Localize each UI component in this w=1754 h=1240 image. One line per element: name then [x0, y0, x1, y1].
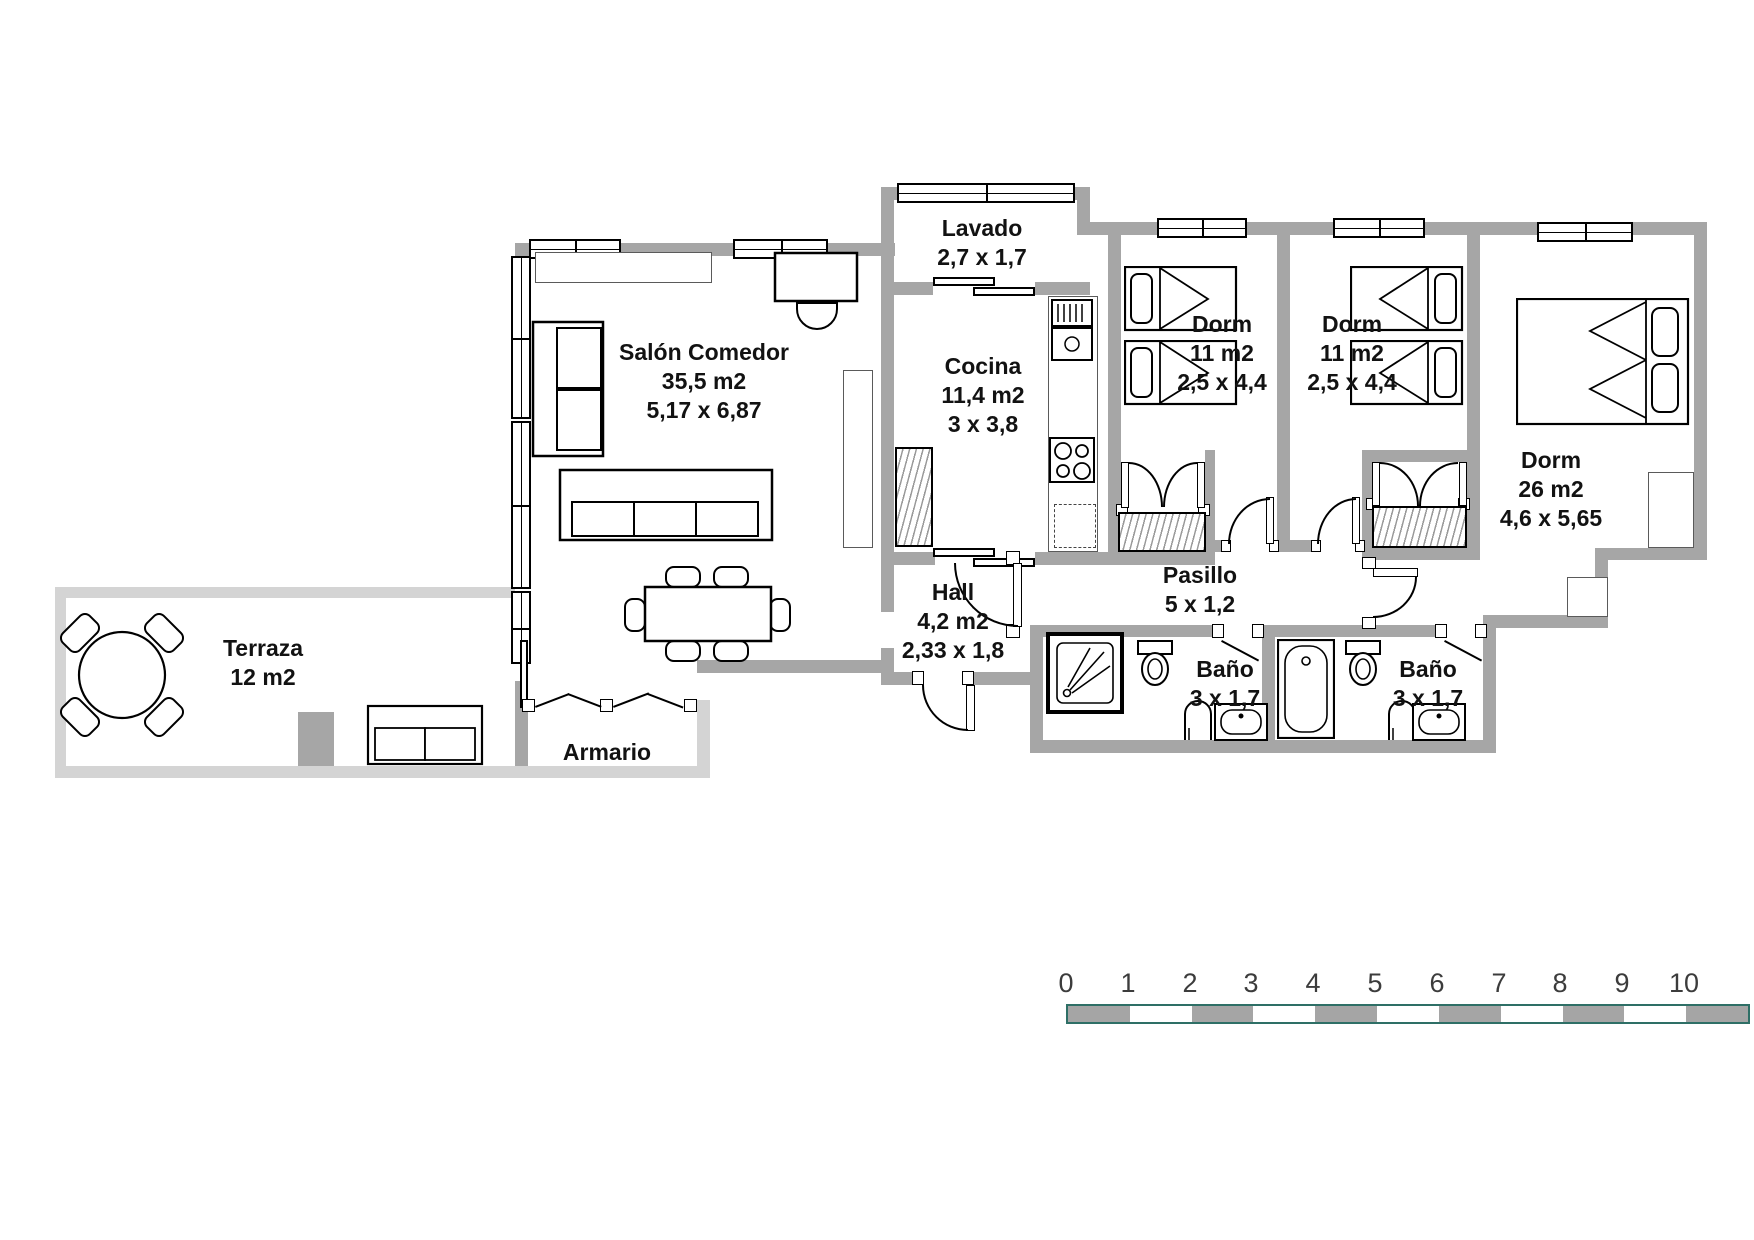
- room-area: 11,4 m2: [941, 381, 1024, 410]
- kitchen-sink-icon: [1050, 298, 1096, 364]
- fold-door-line: [613, 692, 649, 707]
- room-dims: 3 x 1,7: [1190, 684, 1260, 713]
- toilet-icon: [1136, 639, 1174, 687]
- closet1-box: [1118, 512, 1206, 552]
- window-salon-left-1: [511, 256, 531, 419]
- wall-hall-left-upper: [881, 565, 894, 612]
- scale-segment: [1377, 1006, 1439, 1022]
- scale-segment: [1253, 1006, 1315, 1022]
- pantry-closet-cocina: [895, 447, 933, 547]
- closet1-arc-left: [1129, 462, 1163, 507]
- room-dims: 5 x 1,2: [1163, 590, 1237, 619]
- room-name: Dorm: [1177, 310, 1267, 339]
- window-dorm3: [1537, 222, 1633, 242]
- shower-icon: [1046, 632, 1124, 714]
- label-lavado: Lavado 2,7 x 1,7: [937, 214, 1027, 272]
- room-dims: 2,33 x 1,8: [902, 636, 1004, 665]
- label-bano2: Baño 3 x 1,7: [1393, 655, 1463, 713]
- door-jamb: [1362, 617, 1376, 629]
- window-dorm2: [1333, 218, 1425, 238]
- armario-wall-right: [697, 700, 710, 778]
- room-name: Hall: [902, 578, 1004, 607]
- room-name: Cocina: [941, 352, 1024, 381]
- scale-tick-1: 1: [1120, 968, 1135, 999]
- wall-banos-top-b: [1258, 625, 1443, 637]
- scale-tick-0: 0: [1058, 968, 1073, 999]
- appliance-dashed: [1054, 504, 1096, 548]
- terrace-wall-top: [55, 587, 515, 598]
- fold-door-line: [567, 693, 601, 708]
- scale-tick-7: 7: [1491, 968, 1506, 999]
- closet2-leaf-right: [1459, 462, 1467, 506]
- room-dims: 3 x 3,8: [941, 410, 1024, 439]
- room-dims: 5,17 x 6,87: [619, 396, 789, 425]
- scale-tick-3: 3: [1243, 968, 1258, 999]
- room-area: 35,5 m2: [619, 367, 789, 396]
- scale-segment: [1686, 1006, 1748, 1022]
- scale-segment: [1501, 1006, 1563, 1022]
- room-area: 11 m2: [1307, 339, 1397, 368]
- window-salon-left-2: [511, 421, 531, 589]
- room-dims: 3 x 1,7: [1393, 684, 1463, 713]
- floor-plan: Salón Comedor 35,5 m2 5,17 x 6,87 Lavado…: [0, 0, 1754, 1240]
- room-area: 26 m2: [1500, 475, 1602, 504]
- scale-bar: [1066, 1004, 1750, 1024]
- closet1-leaf-left: [1121, 462, 1129, 508]
- terrace-wall-bottom: [55, 766, 710, 778]
- label-pasillo: Pasillo 5 x 1,2: [1163, 561, 1237, 619]
- label-dorm1: Dorm 11 m2 2,5 x 4,4: [1177, 310, 1267, 397]
- dorm3-step-b: [1567, 577, 1608, 617]
- door-arc-dorm3: [1373, 577, 1417, 618]
- door-jamb: [1435, 624, 1447, 638]
- label-armario: Armario: [563, 738, 651, 767]
- room-name: Salón Comedor: [619, 338, 789, 367]
- door-arc-dorm1: [1228, 498, 1270, 544]
- sliding-door-cocina-a: [933, 548, 995, 557]
- wall-salon-cocina: [881, 187, 894, 565]
- sofa-two-seat-icon: [531, 320, 607, 458]
- room-name: Baño: [1190, 655, 1260, 684]
- room-name: Pasillo: [1163, 561, 1237, 590]
- wall-dorm3-bottom: [1608, 548, 1707, 560]
- wall-closet2-top: [1362, 450, 1467, 462]
- window-lavado: [897, 183, 1075, 203]
- closet2-leaf-left: [1372, 462, 1380, 506]
- closet2-box: [1372, 506, 1467, 548]
- closet2-arc-right: [1419, 462, 1458, 506]
- desk-chair-icon: [773, 251, 861, 333]
- room-name: Lavado: [937, 214, 1027, 243]
- sofa-three-seat-icon: [558, 468, 774, 542]
- scale-tick-5: 5: [1367, 968, 1382, 999]
- wall-dorm1-dorm2: [1277, 235, 1290, 552]
- room-dims: 2,5 x 4,4: [1307, 368, 1397, 397]
- room-name: Dorm: [1500, 446, 1602, 475]
- stove-icon: [1048, 436, 1098, 486]
- door-leaf-dorm3: [1373, 568, 1418, 577]
- label-cocina: Cocina 11,4 m2 3 x 3,8: [941, 352, 1024, 439]
- scale-tick-4: 4: [1305, 968, 1320, 999]
- label-dorm2: Dorm 11 m2 2,5 x 4,4: [1307, 310, 1397, 397]
- scale-segment: [1068, 1006, 1130, 1022]
- room-area: 4,2 m2: [902, 607, 1004, 636]
- pillar-terraza: [298, 712, 334, 766]
- dorm3-step-a: [1648, 472, 1694, 548]
- room-dims: 2,5 x 4,4: [1177, 368, 1267, 397]
- scale-tick-9: 9: [1614, 968, 1629, 999]
- room-name: Terraza: [223, 634, 303, 663]
- scale-segment: [1624, 1006, 1686, 1022]
- wall-bano1-left: [1030, 625, 1043, 753]
- label-hall: Hall 4,2 m2 2,33 x 1,8: [902, 578, 1004, 665]
- wall-closet1-stub: [1205, 450, 1215, 552]
- terrace-table-icon: [50, 605, 200, 747]
- window-dorm1: [1157, 218, 1247, 238]
- wall-banos-bottom: [1030, 740, 1496, 753]
- wall-lavado-divider-left: [881, 282, 933, 295]
- label-terraza: Terraza 12 m2: [223, 634, 303, 692]
- toilet-icon: [1344, 639, 1382, 687]
- room-area: 12 m2: [223, 663, 303, 692]
- closet2-arc-left: [1380, 462, 1419, 506]
- dining-table-icon: [618, 563, 798, 665]
- fold-door-jamb: [600, 699, 613, 712]
- closet1-arc-right: [1163, 462, 1197, 507]
- door-arc-dorm2: [1317, 498, 1356, 544]
- entrance-door-arc: [922, 685, 968, 731]
- wall-dorm2-dorm3: [1467, 235, 1480, 560]
- door-jamb: [1212, 624, 1224, 638]
- wall-lavado-divider-right: [1035, 282, 1090, 295]
- scale-segment: [1439, 1006, 1501, 1022]
- terrace-sofa-icon: [366, 704, 484, 766]
- fold-door-jamb: [522, 699, 535, 712]
- fold-door-jamb: [684, 699, 697, 712]
- scale-tick-8: 8: [1552, 968, 1567, 999]
- fold-door-line: [535, 693, 569, 708]
- room-dims: 2,7 x 1,7: [937, 243, 1027, 272]
- sliding-door-lavado-b: [973, 287, 1035, 296]
- wall-hall-top: [881, 552, 935, 565]
- shelf-salon-right: [843, 370, 873, 548]
- scale-segment: [1315, 1006, 1377, 1022]
- bathtub-icon: [1277, 639, 1335, 739]
- scale-segment: [1192, 1006, 1254, 1022]
- scale-tick-10: 10: [1669, 968, 1699, 999]
- sliding-door-lavado-a: [933, 277, 995, 286]
- door-jamb: [1252, 624, 1264, 638]
- door-jamb: [962, 671, 974, 685]
- double-bed-icon: [1516, 298, 1690, 426]
- label-salon: Salón Comedor 35,5 m2 5,17 x 6,87: [619, 338, 789, 425]
- sideboard-salon-top: [535, 252, 712, 283]
- room-dims: 4,6 x 5,65: [1500, 504, 1602, 533]
- room-area: 11 m2: [1177, 339, 1267, 368]
- label-bano1: Baño 3 x 1,7: [1190, 655, 1260, 713]
- sliding-door-terraza: [520, 640, 528, 708]
- scale-tick-2: 2: [1182, 968, 1197, 999]
- room-name: Baño: [1393, 655, 1463, 684]
- door-jamb: [912, 671, 924, 685]
- fold-door-line: [647, 693, 683, 708]
- scale-segment: [1130, 1006, 1192, 1022]
- door-jamb: [1475, 624, 1487, 638]
- closet1-leaf-right: [1197, 462, 1205, 508]
- wall-closet2-bottom: [1362, 548, 1480, 560]
- scale-segment: [1563, 1006, 1625, 1022]
- label-dorm3: Dorm 26 m2 4,6 x 5,65: [1500, 446, 1602, 533]
- room-name: Armario: [563, 738, 651, 767]
- room-name: Dorm: [1307, 310, 1397, 339]
- wall-dorm3-right: [1694, 235, 1707, 560]
- wall-hall-bottom-right: [970, 672, 1043, 685]
- scale-tick-6: 6: [1429, 968, 1444, 999]
